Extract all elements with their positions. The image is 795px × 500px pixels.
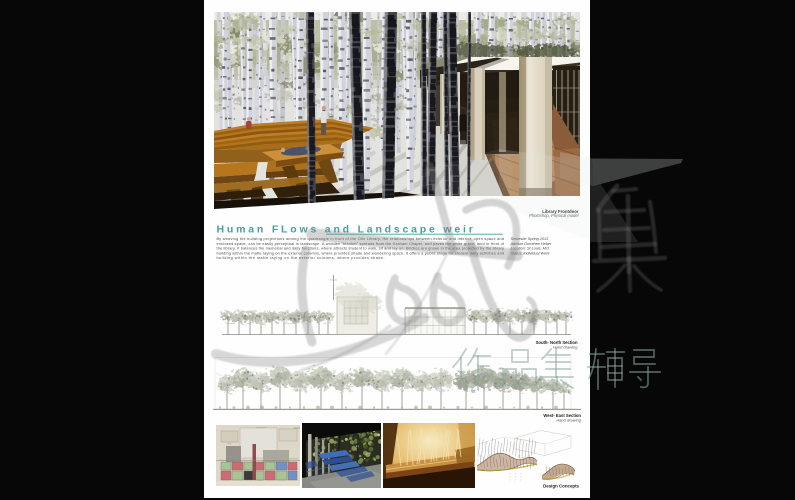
svg-text:Hand drawing: Hand drawing xyxy=(556,417,581,422)
svg-text:Design Concepts: Design Concepts xyxy=(543,484,579,489)
